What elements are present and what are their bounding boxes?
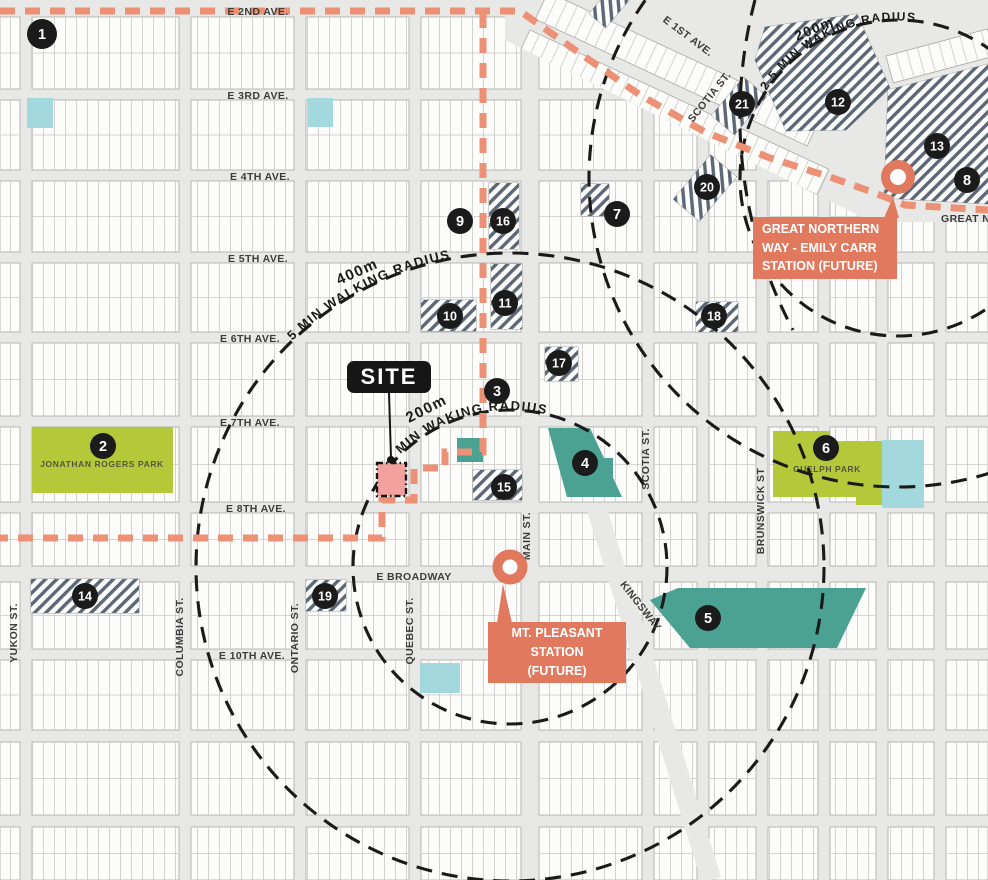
- station-marker: [886, 165, 911, 190]
- landmark-number: 20: [700, 180, 714, 194]
- landmark-number: 5: [704, 611, 712, 627]
- street-label: E 10TH AVE.: [219, 650, 285, 662]
- landmark-number: 14: [78, 589, 92, 603]
- landmark-badge-18: 18: [701, 303, 727, 329]
- map-canvas: JONATHAN ROGERS PARKGUELPH PARK5 MIN WAL…: [0, 0, 988, 880]
- landmark-number: 9: [456, 214, 464, 230]
- landmark-number: 3: [493, 384, 501, 400]
- landmark-badge-9: 9: [447, 208, 473, 234]
- landmark-badge-17: 17: [546, 350, 572, 376]
- landmark-number: 12: [831, 95, 845, 109]
- street-label: ONTARIO ST.: [289, 603, 301, 673]
- landmark-badge-7: 7: [604, 201, 630, 227]
- street-label: E 8TH AVE.: [226, 503, 286, 515]
- cyan-area: [27, 98, 53, 128]
- landmark-badge-2: 2: [90, 433, 116, 459]
- station-name-line: (FUTURE): [488, 662, 626, 681]
- street-label: E 4TH AVE.: [230, 171, 290, 183]
- transit-context-map: JONATHAN ROGERS PARKGUELPH PARK5 MIN WAL…: [0, 0, 988, 880]
- street-label: QUEBEC ST.: [404, 597, 416, 664]
- landmark-number: 19: [318, 589, 332, 603]
- station-marker: [498, 555, 523, 580]
- street-label: E BROADWAY: [376, 571, 451, 583]
- landmark-badge-14: 14: [72, 583, 98, 609]
- landmark-number: 2: [99, 439, 107, 455]
- station-name-line: WAY - EMILY CARR: [762, 239, 897, 258]
- site-marker: [377, 463, 406, 496]
- landmark-number: 15: [497, 480, 511, 494]
- landmark-badge-10: 10: [437, 303, 463, 329]
- street-label: E 3RD AVE.: [227, 90, 288, 102]
- landmark-badge-13: 13: [924, 133, 950, 159]
- station-name-line: MT. PLEASANT: [488, 624, 626, 643]
- street-label: E 2ND AVE.: [227, 6, 288, 18]
- landmark-badge-20: 20: [694, 174, 720, 200]
- landmark-number: 16: [496, 214, 510, 228]
- landmark-badge-8: 8: [954, 167, 980, 193]
- street-label: BRUNSWICK ST: [755, 468, 767, 555]
- station-name-line: STATION (FUTURE): [762, 257, 897, 276]
- great-northern-way-station-label: GREAT NORTHERN WAY - EMILY CARR STATION …: [753, 217, 897, 279]
- teal-area: [599, 458, 613, 495]
- cyan-area: [308, 98, 333, 127]
- landmark-number: 17: [552, 356, 566, 370]
- street-label: E 6TH AVE.: [220, 333, 280, 345]
- landmark-badge-3: 3: [484, 378, 510, 404]
- park-name-label: JONATHAN ROGERS PARK: [40, 459, 164, 469]
- landmark-badge-5: 5: [695, 605, 721, 631]
- landmark-badge-15: 15: [491, 474, 517, 500]
- station-name-line: GREAT NORTHERN: [762, 220, 897, 239]
- landmark-number: 10: [443, 309, 457, 323]
- landmark-number: 13: [930, 139, 944, 153]
- landmark-badge-21: 21: [729, 91, 755, 117]
- station-name-line: STATION: [488, 643, 626, 662]
- landmark-badge-16: 16: [490, 208, 516, 234]
- landmark-badge-4: 4: [572, 450, 598, 476]
- street-label: GREAT NORTHERN WAY: [941, 213, 988, 225]
- landmark-number: 6: [822, 441, 830, 457]
- mt-pleasant-station-label: MT. PLEASANT STATION (FUTURE): [488, 622, 626, 683]
- street-label: YUKON ST.: [8, 603, 20, 663]
- landmark-badge-11: 11: [492, 290, 518, 316]
- site-label-box: SITE: [347, 361, 431, 393]
- cyan-area: [420, 663, 460, 693]
- landmark-badge-1: 1: [27, 19, 57, 49]
- landmark-badge-12: 12: [825, 89, 851, 115]
- street-label: COLUMBIA ST.: [174, 597, 186, 676]
- landmark-number: 4: [581, 456, 589, 472]
- landmark-number: 1: [38, 27, 46, 43]
- landmark-number: 21: [735, 97, 749, 111]
- landmark-number: 18: [707, 309, 721, 323]
- cyan-area: [882, 440, 924, 508]
- site-label: SITE: [361, 364, 418, 390]
- landmark-badge-19: 19: [312, 583, 338, 609]
- landmark-number: 8: [963, 173, 971, 189]
- landmark-number: 7: [613, 207, 621, 223]
- landmark-badge-6: 6: [813, 435, 839, 461]
- landmark-number: 11: [498, 296, 511, 310]
- street-label: E 7TH AVE.: [220, 417, 280, 429]
- street-label: E 5TH AVE.: [228, 253, 288, 265]
- street-label: SCOTIA ST.: [640, 428, 652, 489]
- street-label: MAIN ST.: [521, 512, 533, 560]
